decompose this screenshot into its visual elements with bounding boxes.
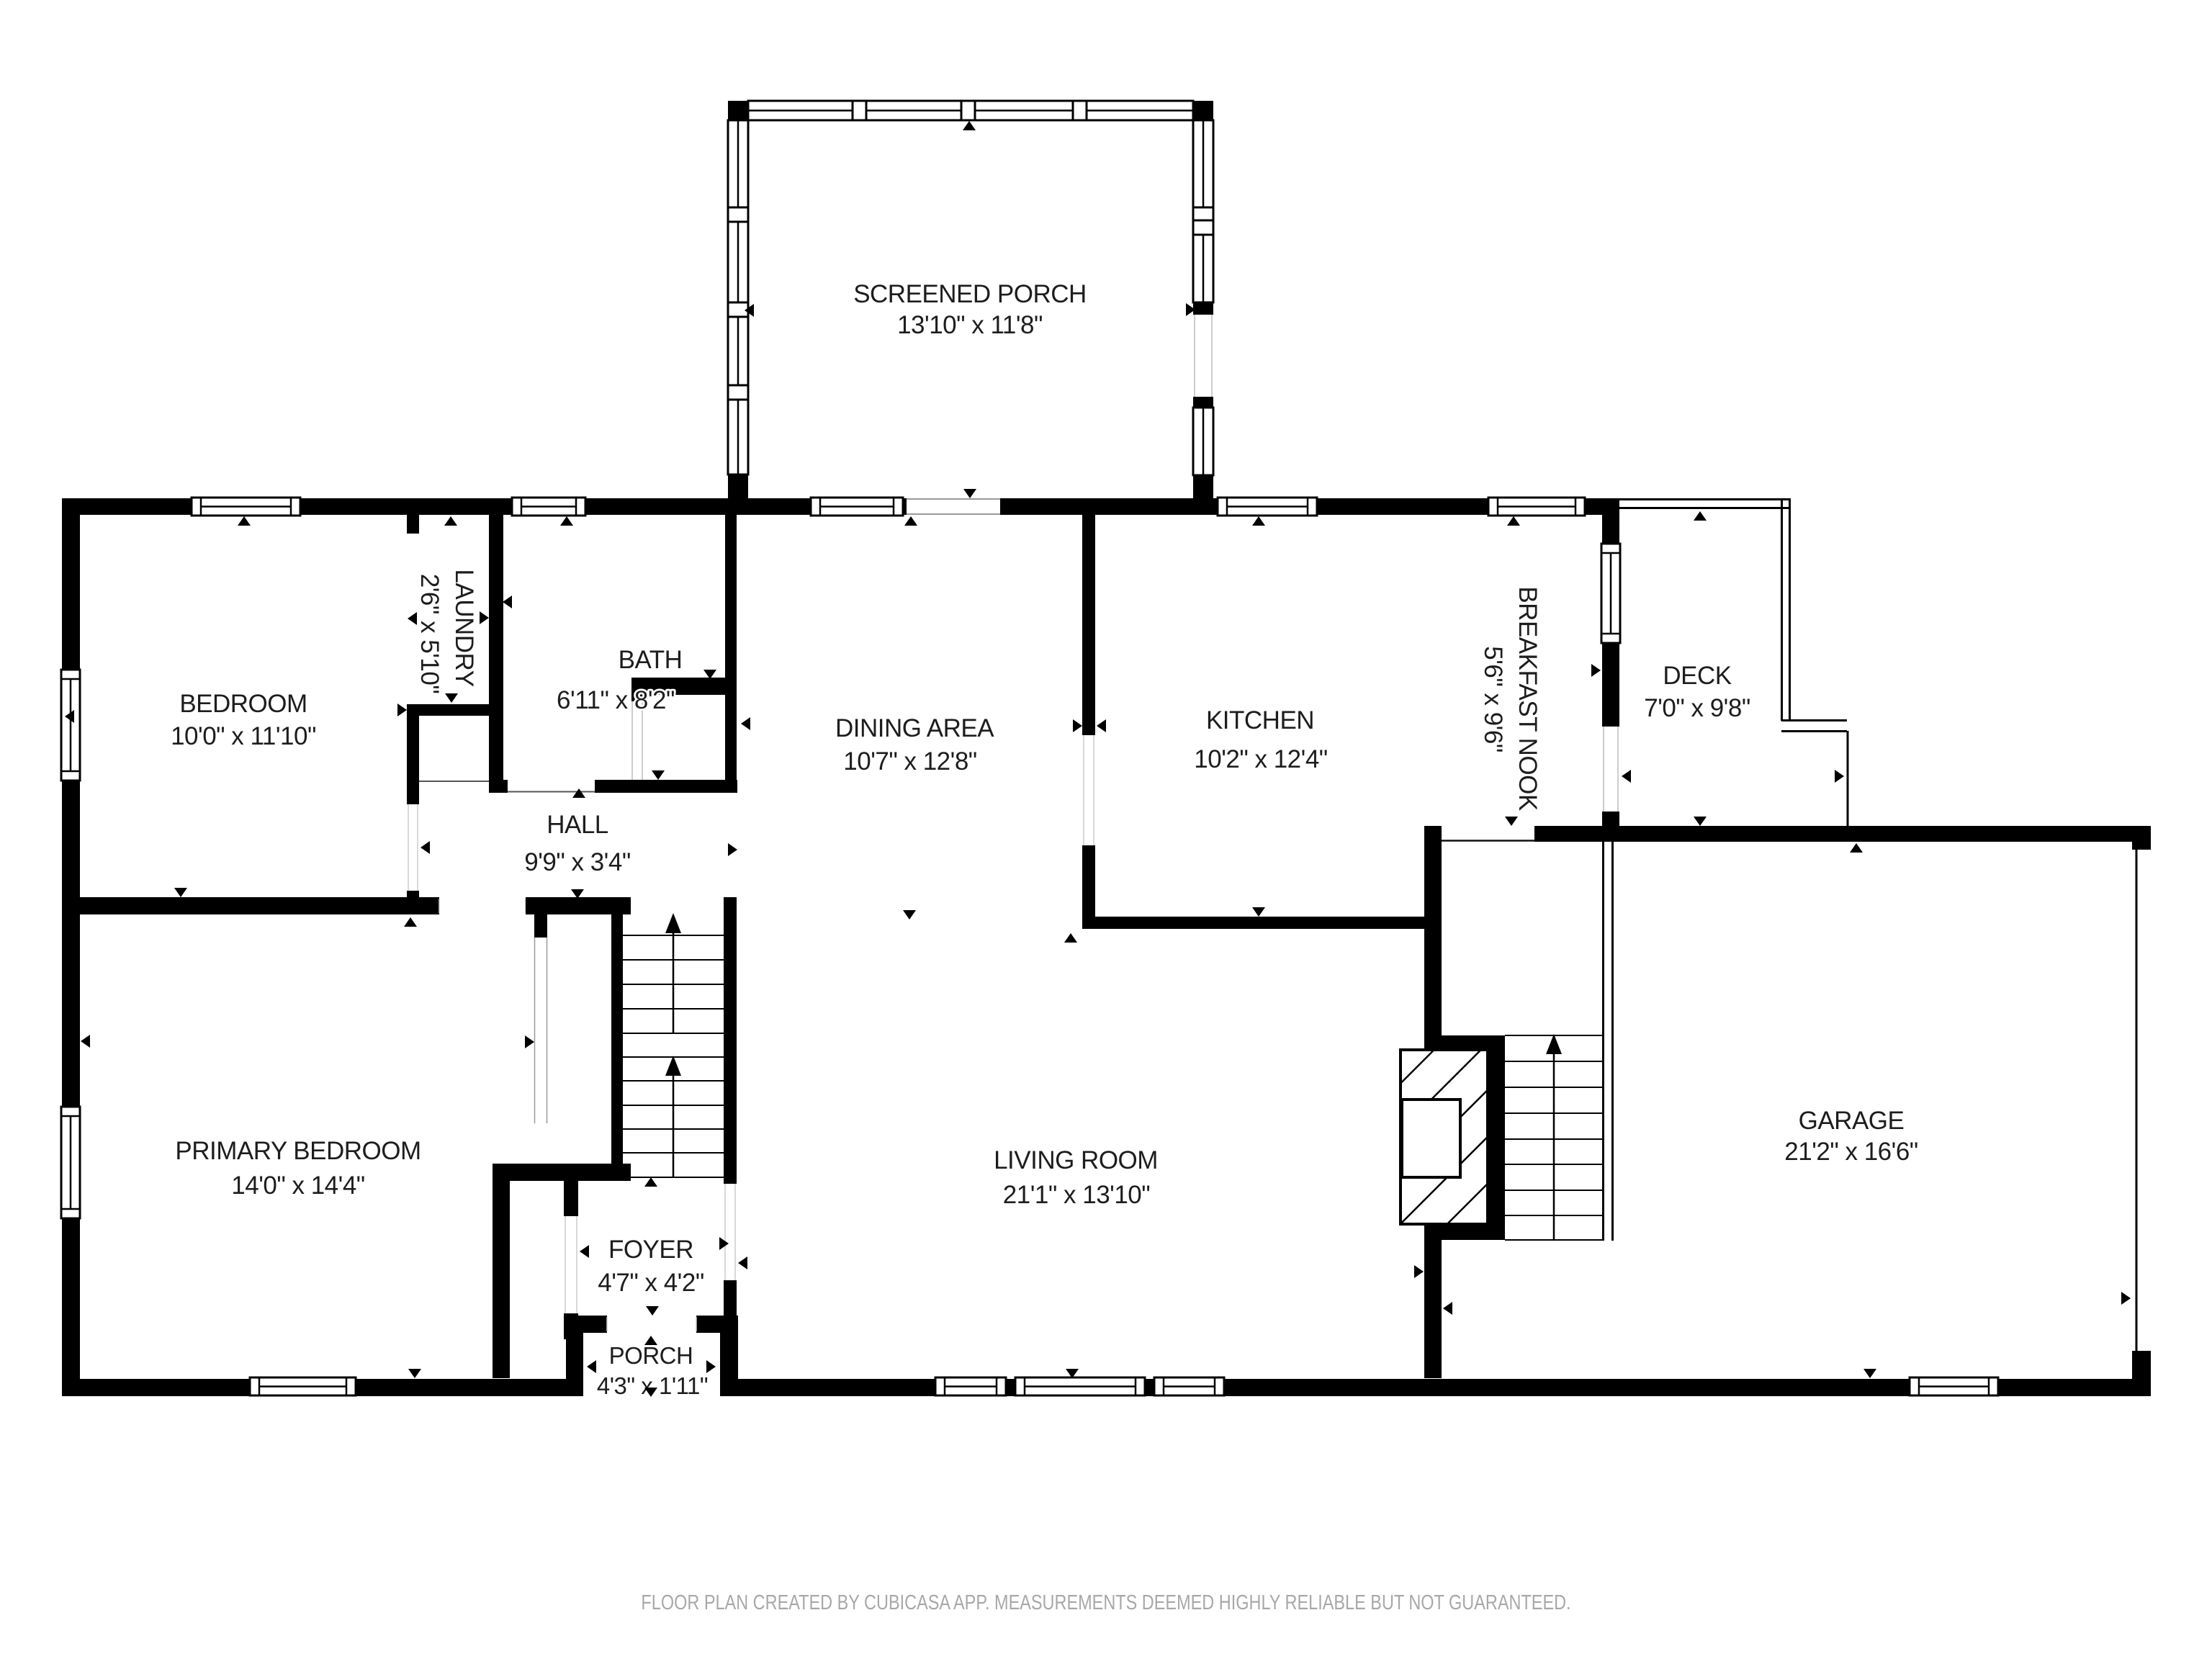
- svg-text:SCREENED PORCH: SCREENED PORCH: [853, 280, 1087, 308]
- svg-text:14'0" x 14'4": 14'0" x 14'4": [231, 1172, 364, 1200]
- svg-text:10'0" x 11'10": 10'0" x 11'10": [171, 722, 316, 750]
- svg-text:FLOOR PLAN CREATED BY CUBICASA: FLOOR PLAN CREATED BY CUBICASA APP. MEAS…: [641, 1591, 1570, 1614]
- svg-text:PORCH: PORCH: [609, 1342, 693, 1369]
- svg-text:HALL: HALL: [547, 811, 608, 839]
- svg-text:BATH: BATH: [619, 646, 683, 674]
- svg-text:GARAGE: GARAGE: [1799, 1107, 1905, 1135]
- svg-text:LIVING ROOM: LIVING ROOM: [994, 1146, 1158, 1174]
- svg-text:FOYER: FOYER: [608, 1236, 693, 1264]
- svg-text:5'6" x 9'6": 5'6" x 9'6": [1479, 646, 1507, 752]
- svg-text:7'0" x 9'8": 7'0" x 9'8": [1644, 694, 1750, 722]
- svg-text:21'2" x 16'6": 21'2" x 16'6": [1784, 1138, 1917, 1166]
- svg-text:DINING AREA: DINING AREA: [835, 714, 994, 742]
- svg-text:KITCHEN: KITCHEN: [1206, 706, 1314, 734]
- svg-text:BEDROOM: BEDROOM: [179, 690, 307, 718]
- svg-text:4'3" x 1'11": 4'3" x 1'11": [597, 1372, 708, 1399]
- svg-text:PRIMARY BEDROOM: PRIMARY BEDROOM: [175, 1137, 421, 1165]
- svg-text:6'11" x 8'2": 6'11" x 8'2": [557, 686, 675, 714]
- svg-text:BREAKFAST NOOK: BREAKFAST NOOK: [1514, 586, 1542, 810]
- svg-text:4'7" x 4'2": 4'7" x 4'2": [598, 1269, 704, 1297]
- svg-text:21'1" x 13'10": 21'1" x 13'10": [1003, 1181, 1150, 1209]
- svg-text:13'10" x 11'8": 13'10" x 11'8": [897, 311, 1043, 339]
- svg-text:10'7" x 12'8": 10'7" x 12'8": [843, 747, 976, 775]
- svg-text:10'2" x 12'4": 10'2" x 12'4": [1194, 745, 1327, 773]
- svg-text:9'9" x 3'4": 9'9" x 3'4": [524, 848, 631, 876]
- svg-text:DECK: DECK: [1663, 662, 1731, 690]
- svg-text:2'6" x 5'10": 2'6" x 5'10": [415, 574, 444, 694]
- svg-text:LAUNDRY: LAUNDRY: [450, 569, 478, 686]
